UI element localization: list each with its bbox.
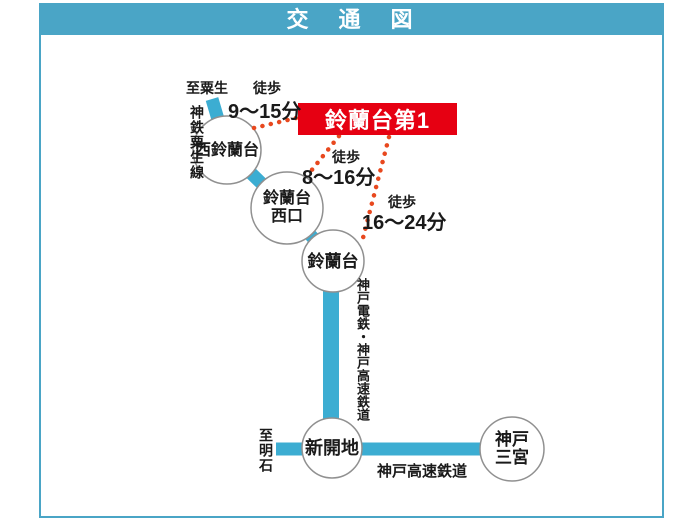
rail-label-to-ao: 至粟生 (186, 78, 228, 98)
station-label-suzurandai-nishiguchi-line2: 西口 (252, 208, 322, 226)
station-label-kobe-sannomiya-line1: 神戸 (477, 431, 547, 449)
destination-label: 鈴蘭台第1 (325, 103, 430, 135)
walk-label-2-time: 8〜16分 (302, 161, 375, 190)
destination-box: 鈴蘭台第1 (298, 103, 457, 135)
rail-label-kobe-dentetsu-kosoku: 神戸電鉄・神戸高速鉄道 (353, 278, 372, 421)
walk-label-1-time: 9〜15分 (228, 95, 301, 124)
station-label-shinkaichi: 新開地 (297, 439, 367, 457)
rail-label-kobe-kosoku: 神戸高速鉄道 (377, 460, 467, 481)
station-label-nishi-suzurandai: 西鈴蘭台 (192, 142, 262, 160)
station-label-suzurandai: 鈴蘭台 (298, 253, 368, 271)
walk-label-3-time: 16〜24分 (362, 206, 447, 235)
station-label-suzurandai-nishiguchi: 鈴蘭台 西口 (252, 190, 322, 226)
station-label-kobe-sannomiya-line2: 三宮 (477, 449, 547, 467)
station-label-suzurandai-nishiguchi-line1: 鈴蘭台 (252, 190, 322, 208)
transit-map-page: 交 通 図 鈴蘭台第1 至粟生 神鉄粟生線 神戸電鉄・神戸高速鉄道 至明石 神戸… (0, 0, 700, 525)
station-label-kobe-sannomiya: 神戸 三宮 (477, 431, 547, 467)
rail-label-to-akashi: 至明石 (256, 428, 276, 473)
